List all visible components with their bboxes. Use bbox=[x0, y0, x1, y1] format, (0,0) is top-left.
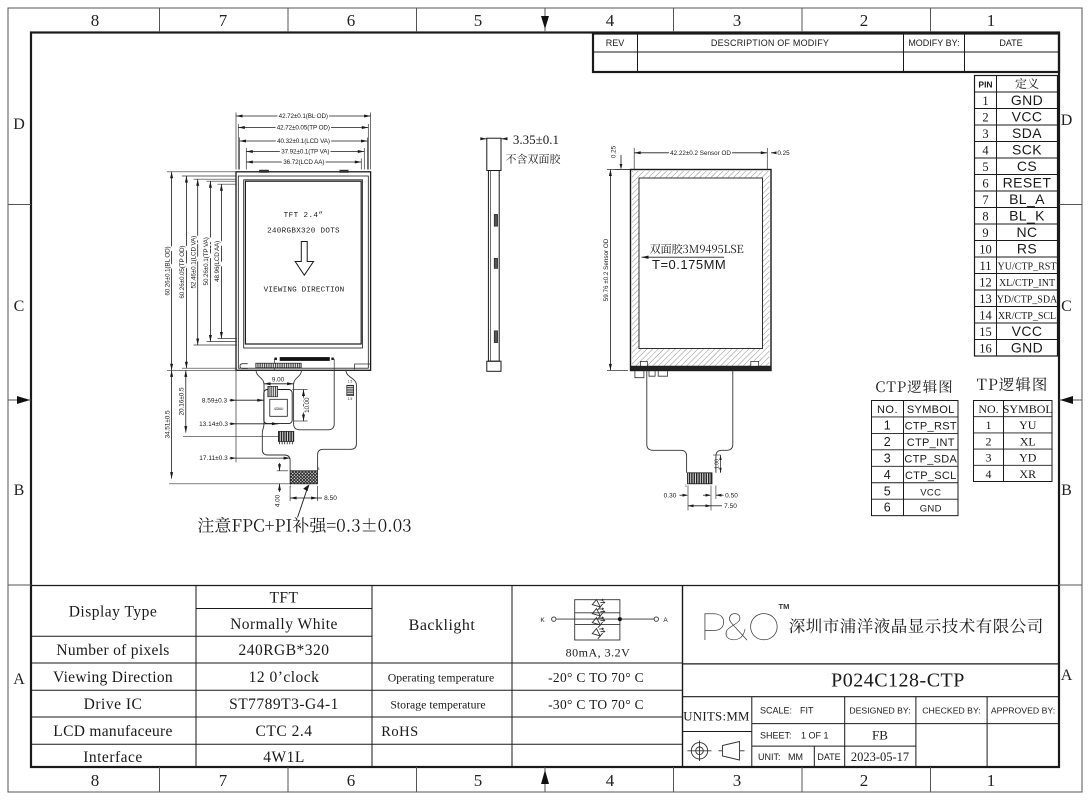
svg-text:DATE: DATE bbox=[817, 752, 840, 762]
svg-text:12 0’clock: 12 0’clock bbox=[249, 669, 320, 686]
svg-text:FB: FB bbox=[872, 728, 888, 743]
svg-text:MODIFY BY:: MODIFY BY: bbox=[908, 38, 959, 48]
svg-text:240RGB*320: 240RGB*320 bbox=[238, 642, 329, 659]
svg-text:36.72(LCD AA): 36.72(LCD AA) bbox=[283, 159, 324, 166]
svg-text:RESET: RESET bbox=[1003, 175, 1052, 191]
svg-text:11: 11 bbox=[979, 259, 991, 273]
svg-text:VCC: VCC bbox=[1012, 109, 1043, 125]
svg-text:10: 10 bbox=[979, 243, 992, 257]
svg-text:YD: YD bbox=[1019, 451, 1037, 465]
svg-text:60.26±0.1(BL OD): 60.26±0.1(BL OD) bbox=[164, 246, 171, 295]
svg-text:C: C bbox=[1061, 298, 1072, 315]
svg-text:P024C128-CTP: P024C128-CTP bbox=[831, 670, 965, 692]
svg-text:50.26±0.1(TP VA): 50.26±0.1(TP VA) bbox=[203, 237, 210, 285]
svg-text:GND: GND bbox=[920, 504, 942, 515]
svg-text:ST7789T3-G4-1: ST7789T3-G4-1 bbox=[229, 696, 339, 713]
svg-text:SYMBOL: SYMBOL bbox=[1003, 402, 1053, 416]
svg-text:CTP_SDA: CTP_SDA bbox=[904, 453, 957, 465]
svg-text:CTP_RST: CTP_RST bbox=[905, 420, 957, 432]
svg-text:40.32±0.1(LCD VA): 40.32±0.1(LCD VA) bbox=[277, 138, 330, 145]
svg-text:3: 3 bbox=[884, 451, 891, 465]
svg-text:9: 9 bbox=[982, 226, 988, 240]
svg-text:42.72±0.05(TP OD): 42.72±0.05(TP OD) bbox=[277, 125, 330, 132]
svg-text:1: 1 bbox=[986, 418, 992, 432]
svg-text:16: 16 bbox=[979, 342, 992, 356]
svg-text:17.11±0.3: 17.11±0.3 bbox=[199, 455, 228, 462]
svg-text:3.35±0.1: 3.35±0.1 bbox=[513, 132, 559, 147]
svg-text:Normally White: Normally White bbox=[230, 616, 338, 633]
svg-text:Viewing Direction: Viewing Direction bbox=[53, 669, 173, 686]
svg-text:Interface: Interface bbox=[83, 749, 143, 766]
svg-text:UNIT:: UNIT: bbox=[758, 752, 781, 762]
svg-text:GND: GND bbox=[1011, 340, 1043, 356]
svg-text:SCALE:: SCALE: bbox=[760, 706, 792, 716]
svg-text:4: 4 bbox=[982, 144, 989, 158]
svg-text:9.00: 9.00 bbox=[272, 377, 285, 384]
svg-text:2: 2 bbox=[982, 111, 988, 125]
svg-text:DESIGNED BY:: DESIGNED BY: bbox=[849, 706, 910, 716]
svg-text:PIN: PIN bbox=[978, 80, 992, 90]
svg-text:5: 5 bbox=[474, 771, 483, 790]
svg-text:8.50: 8.50 bbox=[324, 495, 337, 502]
svg-text:5: 5 bbox=[474, 11, 483, 30]
svg-text:2: 2 bbox=[986, 434, 992, 448]
svg-text:NO.: NO. bbox=[877, 404, 898, 416]
svg-text:8.59±0.3: 8.59±0.3 bbox=[202, 397, 228, 404]
svg-text:CS: CS bbox=[1017, 158, 1037, 174]
svg-text:B: B bbox=[14, 482, 25, 499]
svg-text:1: 1 bbox=[884, 418, 891, 432]
svg-text:13: 13 bbox=[979, 292, 992, 306]
svg-text:TFT 2.4”: TFT 2.4” bbox=[284, 212, 324, 220]
svg-text:8: 8 bbox=[982, 210, 988, 224]
svg-text:3: 3 bbox=[986, 451, 992, 465]
svg-text:CTC 2.4: CTC 2.4 bbox=[256, 723, 313, 740]
svg-text:59.76 ±0.2 Sensor OD: 59.76 ±0.2 Sensor OD bbox=[603, 238, 610, 301]
svg-text:5: 5 bbox=[982, 160, 988, 174]
svg-text:VCC: VCC bbox=[920, 487, 941, 498]
svg-text:0.25: 0.25 bbox=[777, 150, 790, 157]
svg-text:48.96(LCD AA): 48.96(LCD AA) bbox=[214, 241, 221, 282]
svg-text:APPROVED BY:: APPROVED BY: bbox=[991, 706, 1055, 716]
svg-text:C: C bbox=[14, 298, 25, 315]
svg-text:MM: MM bbox=[788, 752, 803, 762]
svg-text:DATE: DATE bbox=[999, 38, 1022, 48]
svg-text:1.5: 1.5 bbox=[348, 397, 353, 401]
svg-text:NC: NC bbox=[1016, 224, 1037, 240]
svg-text:80mA, 3.2V: 80mA, 3.2V bbox=[566, 646, 631, 660]
svg-text:34.51±0.5: 34.51±0.5 bbox=[164, 410, 171, 438]
svg-text:4336U: 4336U bbox=[274, 407, 284, 411]
svg-text:6: 6 bbox=[347, 11, 356, 30]
svg-text:NO.: NO. bbox=[978, 402, 998, 416]
svg-text:1: 1 bbox=[987, 11, 996, 30]
svg-text:Backlight: Backlight bbox=[409, 617, 476, 634]
svg-text:0.30: 0.30 bbox=[664, 492, 677, 499]
svg-text:RS: RS bbox=[1017, 241, 1037, 257]
svg-text:BL_K: BL_K bbox=[1009, 208, 1045, 224]
svg-text:0.25: 0.25 bbox=[611, 145, 618, 158]
svg-text:1: 1 bbox=[685, 484, 687, 488]
svg-text:XL/CTP_INT: XL/CTP_INT bbox=[999, 278, 1055, 289]
svg-text:42.72±0.1(BL OD): 42.72±0.1(BL OD) bbox=[279, 113, 328, 120]
svg-text:Operating temperature: Operating temperature bbox=[388, 671, 494, 685]
svg-text:T=0.175MM: T=0.175MM bbox=[652, 257, 726, 272]
svg-text:4: 4 bbox=[606, 11, 615, 30]
svg-text:4: 4 bbox=[606, 771, 615, 790]
svg-text:D: D bbox=[13, 116, 25, 133]
svg-text:D: D bbox=[1061, 112, 1073, 129]
svg-text:6: 6 bbox=[982, 177, 988, 191]
svg-text:RoHS: RoHS bbox=[381, 724, 418, 740]
svg-text:6: 6 bbox=[347, 771, 356, 790]
svg-text:0.50: 0.50 bbox=[725, 492, 738, 499]
svg-text:K: K bbox=[540, 617, 545, 624]
svg-text:13.14±0.3: 13.14±0.3 bbox=[199, 421, 228, 428]
svg-text:15: 15 bbox=[979, 325, 992, 339]
svg-text:5: 5 bbox=[884, 484, 891, 498]
svg-text:CTP_SCL: CTP_SCL bbox=[905, 470, 957, 482]
svg-text:YU: YU bbox=[1019, 418, 1037, 432]
svg-text:A: A bbox=[13, 671, 25, 688]
svg-text:FIT: FIT bbox=[800, 706, 814, 716]
svg-text:CHECKED BY:: CHECKED BY: bbox=[922, 706, 980, 716]
svg-text:1 OF 1: 1 OF 1 bbox=[801, 731, 829, 741]
svg-text:7: 7 bbox=[219, 771, 228, 790]
svg-text:7.50: 7.50 bbox=[724, 503, 737, 510]
svg-text:YU/CTP_RST: YU/CTP_RST bbox=[998, 262, 1057, 273]
svg-text:14: 14 bbox=[979, 309, 992, 323]
svg-text:4W1L: 4W1L bbox=[263, 749, 305, 766]
svg-text:1.00: 1.00 bbox=[715, 459, 721, 469]
svg-text:4: 4 bbox=[986, 467, 992, 481]
svg-text:B: B bbox=[1061, 482, 1072, 499]
svg-text:Drive IC: Drive IC bbox=[84, 696, 143, 713]
svg-text:YD/CTP_SDA: YD/CTP_SDA bbox=[997, 295, 1058, 306]
svg-text:52.46±0.1(LCD VA): 52.46±0.1(LCD VA) bbox=[191, 236, 198, 289]
svg-text:2: 2 bbox=[884, 435, 891, 449]
svg-text:TFT: TFT bbox=[269, 590, 298, 607]
svg-text:8: 8 bbox=[91, 771, 100, 790]
svg-text:DESCRIPTION OF MODIFY: DESCRIPTION OF MODIFY bbox=[711, 38, 829, 48]
svg-text:2023-05-17: 2023-05-17 bbox=[851, 750, 909, 764]
svg-text:3: 3 bbox=[733, 11, 742, 30]
svg-text:6: 6 bbox=[884, 501, 891, 515]
svg-text:CTP_INT: CTP_INT bbox=[907, 437, 955, 449]
svg-text:XR: XR bbox=[1019, 467, 1036, 481]
svg-text:A: A bbox=[1061, 667, 1073, 684]
svg-text:VCC: VCC bbox=[1012, 323, 1043, 339]
svg-text:TM: TM bbox=[779, 602, 790, 611]
svg-text:8: 8 bbox=[91, 11, 100, 30]
svg-text:8: 8 bbox=[318, 467, 320, 471]
svg-text:3: 3 bbox=[982, 127, 988, 141]
svg-text:XL: XL bbox=[1020, 434, 1036, 448]
svg-text:VIEWING DIRECTION: VIEWING DIRECTION bbox=[264, 287, 345, 295]
svg-text:1: 1 bbox=[987, 771, 996, 790]
svg-text:Display Type: Display Type bbox=[69, 604, 158, 621]
svg-text:SHEET:: SHEET: bbox=[760, 731, 792, 741]
svg-text:7: 7 bbox=[219, 11, 228, 30]
svg-text:2: 2 bbox=[860, 771, 869, 790]
svg-text:10.00: 10.00 bbox=[304, 397, 311, 413]
svg-text:SCK: SCK bbox=[1012, 142, 1042, 158]
svg-text:7: 7 bbox=[982, 193, 988, 207]
svg-text:4.00: 4.00 bbox=[274, 494, 281, 507]
svg-text:A: A bbox=[663, 617, 668, 624]
svg-text:60.26±0.05(TP OD): 60.26±0.05(TP OD) bbox=[179, 246, 186, 299]
svg-text:1.5: 1.5 bbox=[348, 380, 353, 384]
svg-text:SYMBOL: SYMBOL bbox=[907, 404, 955, 416]
svg-text:REV: REV bbox=[606, 38, 625, 48]
svg-text:-30° C TO 70° C: -30° C TO 70° C bbox=[548, 697, 644, 712]
svg-text:3: 3 bbox=[733, 771, 742, 790]
svg-text:20.16±0.5: 20.16±0.5 bbox=[179, 387, 186, 415]
svg-text:42.22±0.2 Sensor OD: 42.22±0.2 Sensor OD bbox=[670, 150, 731, 157]
svg-text:XR/CTP_SCL: XR/CTP_SCL bbox=[998, 311, 1056, 322]
svg-text:SDA: SDA bbox=[1012, 125, 1042, 141]
svg-text:-20° C TO 70° C: -20° C TO 70° C bbox=[548, 670, 644, 685]
svg-text:1: 1 bbox=[982, 94, 988, 108]
svg-text:12: 12 bbox=[979, 276, 992, 290]
svg-text:GND: GND bbox=[1011, 92, 1043, 108]
svg-text:37.92±0.1(TP VA): 37.92±0.1(TP VA) bbox=[281, 149, 329, 156]
svg-text:UNITS:MM: UNITS:MM bbox=[683, 710, 749, 724]
svg-text:BL_A: BL_A bbox=[1009, 191, 1045, 207]
svg-text:Storage temperature: Storage temperature bbox=[390, 698, 485, 712]
svg-text:4: 4 bbox=[884, 468, 891, 482]
svg-text:240RGBX320 DOTS: 240RGBX320 DOTS bbox=[267, 228, 340, 236]
svg-text:Number of pixels: Number of pixels bbox=[56, 642, 169, 659]
svg-text:2: 2 bbox=[860, 11, 869, 30]
svg-text:LCD manufaceure: LCD manufaceure bbox=[53, 723, 172, 740]
